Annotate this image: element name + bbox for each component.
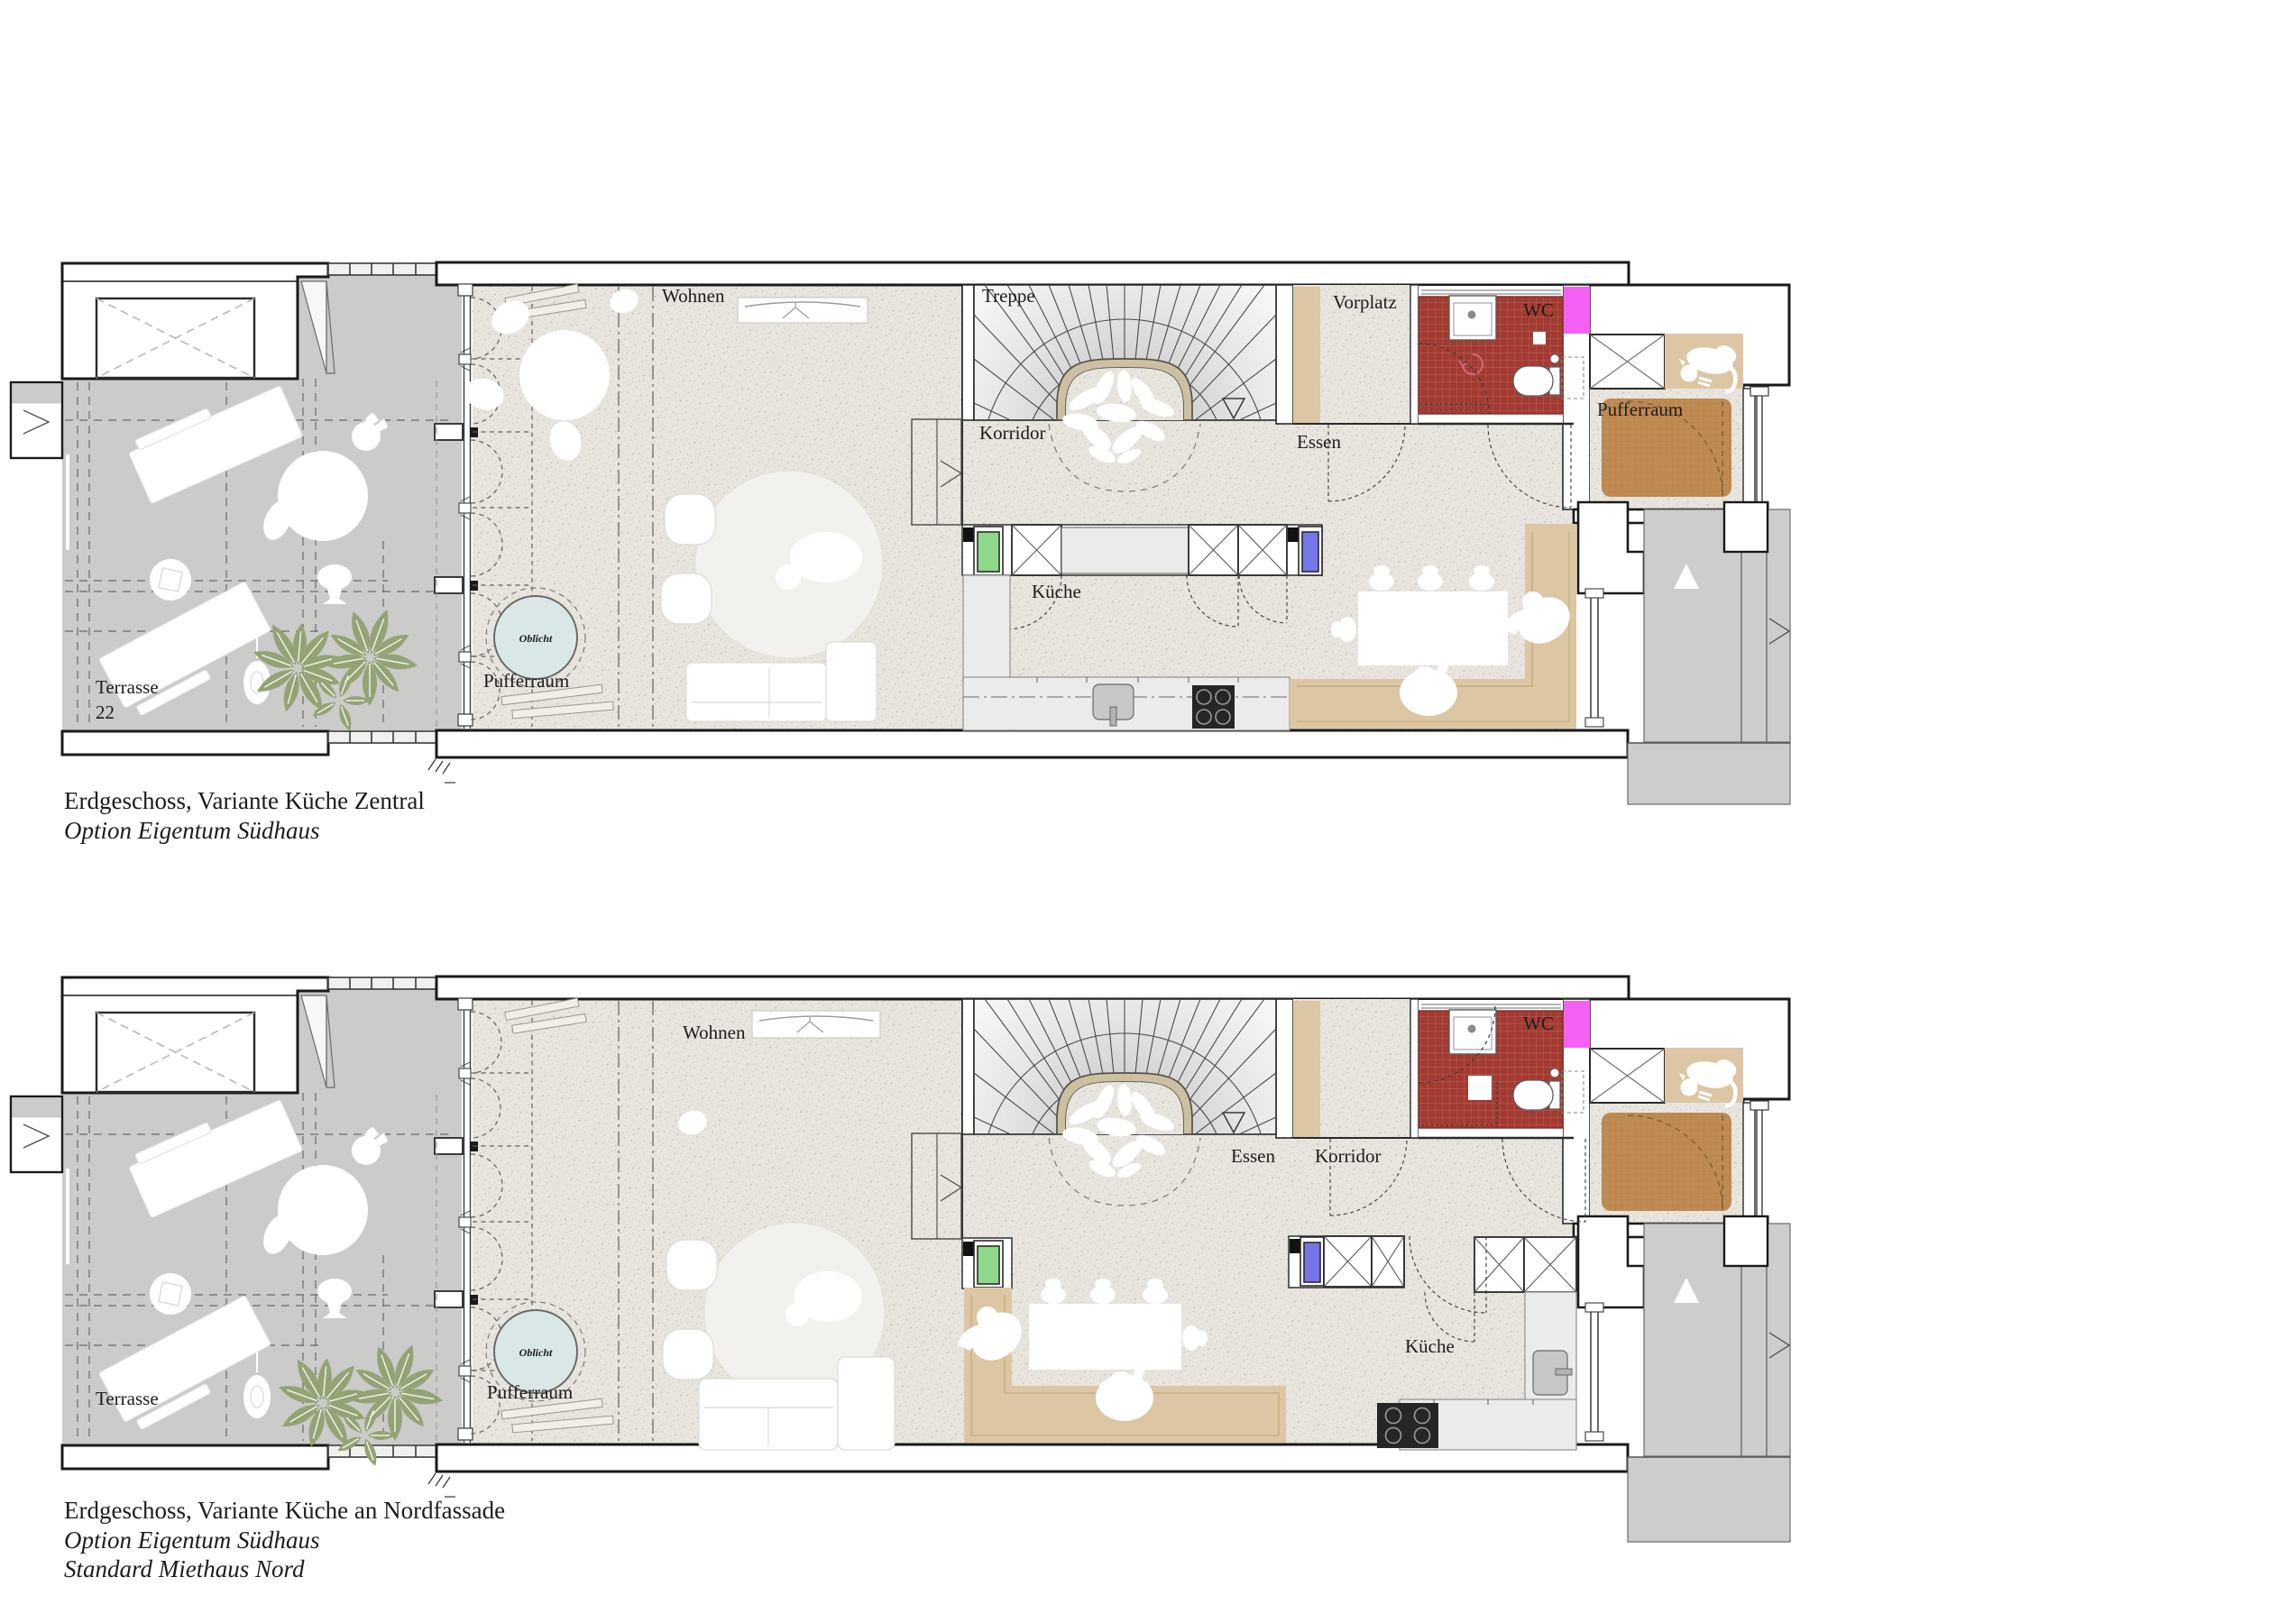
svg-text:22: 22 bbox=[96, 701, 115, 723]
svg-text:Pufferraum: Pufferraum bbox=[487, 1381, 573, 1403]
svg-text:Korridor: Korridor bbox=[979, 422, 1045, 444]
svg-text:Terrasse: Terrasse bbox=[96, 676, 159, 698]
svg-text:Treppe: Treppe bbox=[982, 285, 1035, 307]
svg-text:Pufferraum: Pufferraum bbox=[1597, 399, 1683, 420]
svg-text:Essen: Essen bbox=[1231, 1145, 1275, 1167]
svg-text:Terrasse: Terrasse bbox=[96, 1388, 159, 1409]
svg-text:Korridor: Korridor bbox=[1315, 1145, 1381, 1167]
svg-text:Option Eigentum Südhaus: Option Eigentum Südhaus bbox=[64, 817, 320, 844]
svg-text:Vorplatz: Vorplatz bbox=[1333, 291, 1397, 313]
svg-text:Erdgeschoss, Variante Küche Ze: Erdgeschoss, Variante Küche Zentral bbox=[64, 787, 425, 814]
svg-text:Option Eigentum Südhaus: Option Eigentum Südhaus bbox=[64, 1527, 320, 1554]
svg-text:Wohnen: Wohnen bbox=[683, 1022, 746, 1043]
svg-text:Erdgeschoss, Variante Küche an: Erdgeschoss, Variante Küche an Nordfassa… bbox=[64, 1497, 505, 1524]
svg-text:WC: WC bbox=[1523, 1013, 1554, 1034]
svg-text:Wohnen: Wohnen bbox=[662, 285, 725, 307]
svg-text:Küche: Küche bbox=[1032, 581, 1081, 602]
svg-text:Pufferraum: Pufferraum bbox=[483, 670, 569, 692]
svg-text:WC: WC bbox=[1523, 299, 1554, 321]
svg-text:Standard Miethaus Nord: Standard Miethaus Nord bbox=[64, 1555, 305, 1582]
svg-text:Essen: Essen bbox=[1297, 431, 1341, 453]
svg-text:Küche: Küche bbox=[1405, 1335, 1455, 1357]
